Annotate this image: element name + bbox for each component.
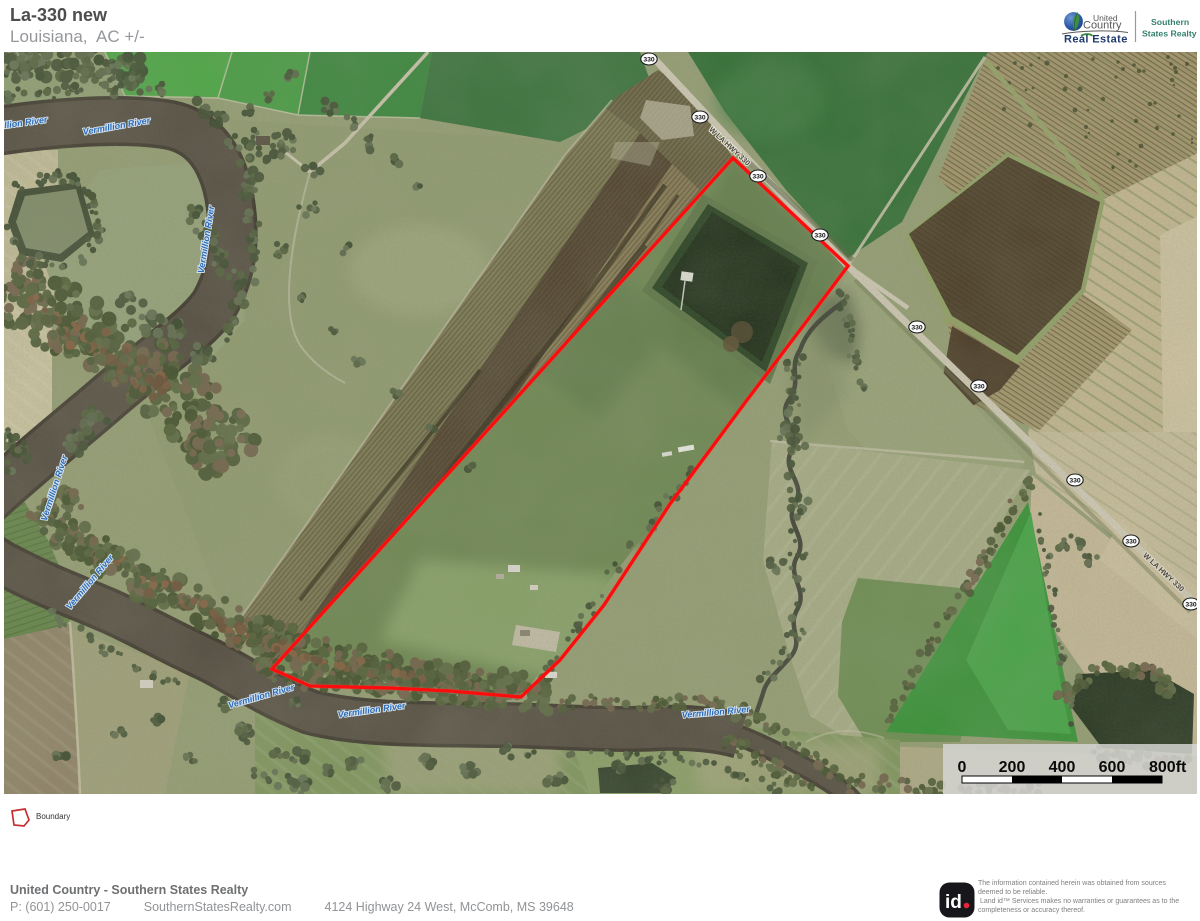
svg-text:330: 330 <box>1069 477 1081 484</box>
svg-text:330: 330 <box>1125 538 1137 545</box>
svg-text:800ft: 800ft <box>1149 759 1187 776</box>
svg-text:Country: Country <box>1083 20 1122 32</box>
svg-text:330: 330 <box>752 173 764 180</box>
svg-text:400: 400 <box>1049 759 1076 776</box>
svg-text:330: 330 <box>973 383 985 390</box>
svg-text:0: 0 <box>958 759 967 776</box>
svg-text:States Realty: States Realty <box>1142 29 1197 39</box>
svg-text:Southern: Southern <box>1151 17 1189 27</box>
svg-text:330: 330 <box>643 56 655 63</box>
svg-text:330: 330 <box>911 324 923 331</box>
svg-text:600: 600 <box>1099 759 1126 776</box>
svg-text:330: 330 <box>694 114 706 121</box>
svg-text:200: 200 <box>999 759 1026 776</box>
svg-text:Real Estate: Real Estate <box>1064 34 1128 46</box>
svg-text:330: 330 <box>814 232 826 239</box>
svg-text:id: id <box>945 892 962 913</box>
svg-text:330: 330 <box>1185 601 1197 608</box>
